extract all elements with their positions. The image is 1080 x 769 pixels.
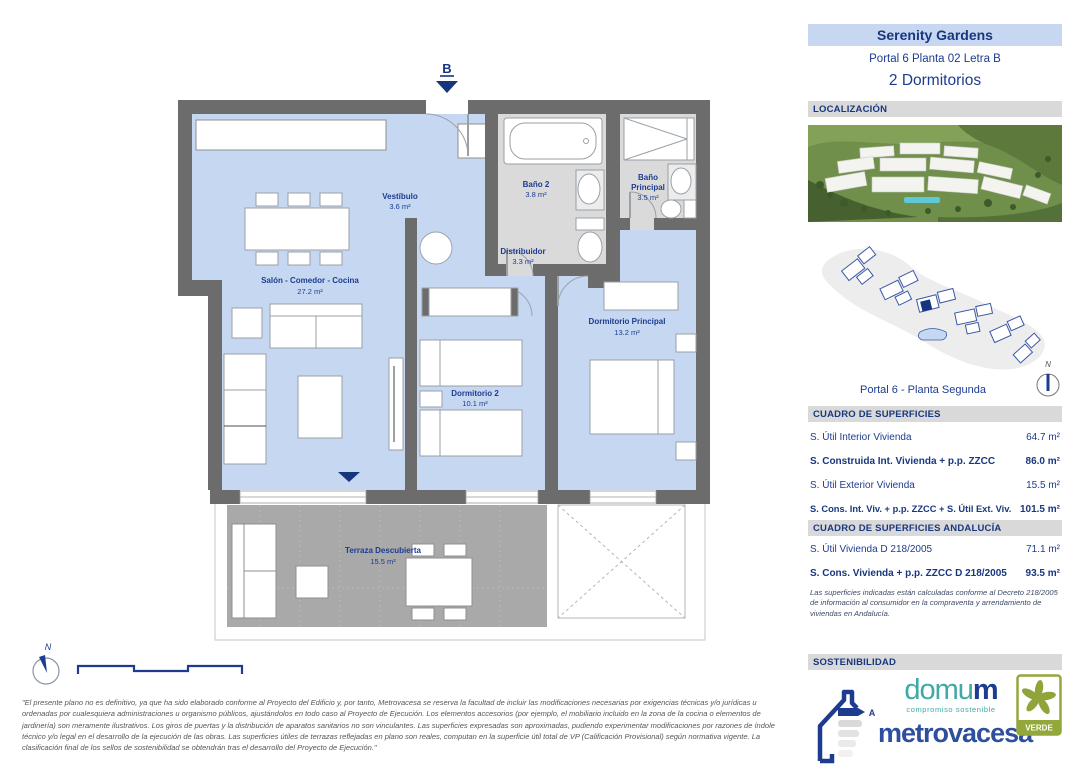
svg-text:13.2 m²: 13.2 m²: [614, 328, 640, 337]
table-row: S. Cons. Int. Viv. + p.p. ZZCC + S. Útil…: [808, 498, 1062, 522]
svg-text:Principal: Principal: [631, 183, 665, 192]
siteplan-compass: N: [1034, 358, 1062, 402]
room-label-vestibulo: Vestíbulo: [382, 192, 418, 201]
svg-text:3.8 m²: 3.8 m²: [525, 190, 547, 199]
verde-label: VERDE: [1025, 724, 1053, 733]
floor-plan: B: [170, 58, 715, 643]
siteplan-north-label: N: [1045, 360, 1051, 369]
energy-rating-letter: A: [869, 708, 876, 718]
svg-text:27.2 m²: 27.2 m²: [297, 287, 323, 296]
sustainability-logos: A domum compromiso sostenible metrovaces…: [808, 674, 1062, 764]
svg-text:10.1 m²: 10.1 m²: [462, 399, 488, 408]
info-sidebar: Serenity Gardens Portal 6 Planta 02 Letr…: [808, 24, 1062, 764]
entrance-letter: B: [442, 61, 451, 76]
entrance-marker: B: [436, 61, 458, 93]
unit-reference: Portal 6 Planta 02 Letra B: [808, 53, 1062, 65]
svg-text:3.5 m²: 3.5 m²: [637, 193, 659, 202]
entrance-arrow-icon: [436, 81, 458, 93]
unit-type: 2 Dormitorios: [808, 72, 1062, 90]
domum-tagline: compromiso sostenible: [886, 706, 1016, 714]
room-label-dormitorio2: Dormitorio 2: [451, 389, 499, 398]
aerial-photo: [808, 125, 1062, 222]
room-label-salon: Salón - Comedor - Cocina: [261, 276, 359, 285]
legal-disclaimer: "El presente plano no es definitivo, ya …: [22, 697, 782, 753]
washing-machine: [420, 232, 452, 264]
site-pool: [918, 329, 946, 341]
section-cuadro-superficies: CUADRO DE SUPERFICIES: [808, 406, 1062, 422]
table-row: S. Construida Int. Vivienda + p.p. ZZCC8…: [808, 450, 1062, 474]
energy-rating-house-icon: A: [808, 684, 880, 764]
bedroom2-furniture: [420, 288, 522, 456]
room-label-terraza: Terraza Descubierta: [345, 546, 421, 555]
room-label-distribuidor: Distribuidor: [500, 247, 545, 256]
room-label-bano-principal: Baño: [638, 173, 658, 182]
domum-logo: domum compromiso sostenible: [886, 676, 1016, 714]
svg-text:3.3 m²: 3.3 m²: [512, 257, 534, 266]
verde-certificate-badge: VERDE: [1016, 674, 1062, 736]
table-row: S. Útil Exterior Vivienda15.5 m²: [808, 474, 1062, 498]
building-profile-line: [72, 656, 247, 680]
table-row: S. Cons. Vivienda + p.p. ZZCC D 218/2005…: [808, 562, 1062, 586]
section-localizacion: LOCALIZACIÓN: [808, 101, 1062, 117]
north-label: N: [45, 642, 52, 652]
siteplan-compass-needle-icon: [1047, 374, 1050, 391]
north-compass: N: [18, 640, 78, 692]
room-label-bano2: Baño 2: [523, 180, 550, 189]
room-label-dormitorio-principal: Dormitorio Principal: [589, 317, 666, 326]
table-row: S. Útil Vivienda D 218/200571.1 m²: [808, 538, 1062, 562]
project-title: Serenity Gardens: [808, 24, 1062, 46]
section-sostenibilidad: SOSTENIBILIDAD: [808, 654, 1062, 670]
floorplan-brochure-page: { "header": { "project": "Serenity Garde…: [0, 0, 1080, 764]
site-plan: [808, 228, 1062, 380]
svg-text:15.5 m²: 15.5 m²: [370, 557, 396, 566]
section-cuadro-andalucia: CUADRO DE SUPERFICIES ANDALUCÍA: [808, 520, 1062, 536]
andalucia-note: Las superficies indicadas están calculad…: [810, 588, 1062, 619]
pergola-area: [558, 505, 685, 618]
table-row: S. Útil Interior Vivienda64.7 m²: [808, 426, 1062, 450]
floor-plan-drawing: B: [170, 58, 715, 643]
surfaces-table: S. Útil Interior Vivienda64.7 m² S. Cons…: [808, 426, 1062, 522]
siteplan-caption: Portal 6 - Planta Segunda: [808, 384, 1038, 396]
svg-text:3.6 m²: 3.6 m²: [389, 202, 411, 211]
surfaces-andalucia-table: S. Útil Vivienda D 218/200571.1 m² S. Co…: [808, 538, 1062, 586]
pool: [904, 197, 940, 203]
